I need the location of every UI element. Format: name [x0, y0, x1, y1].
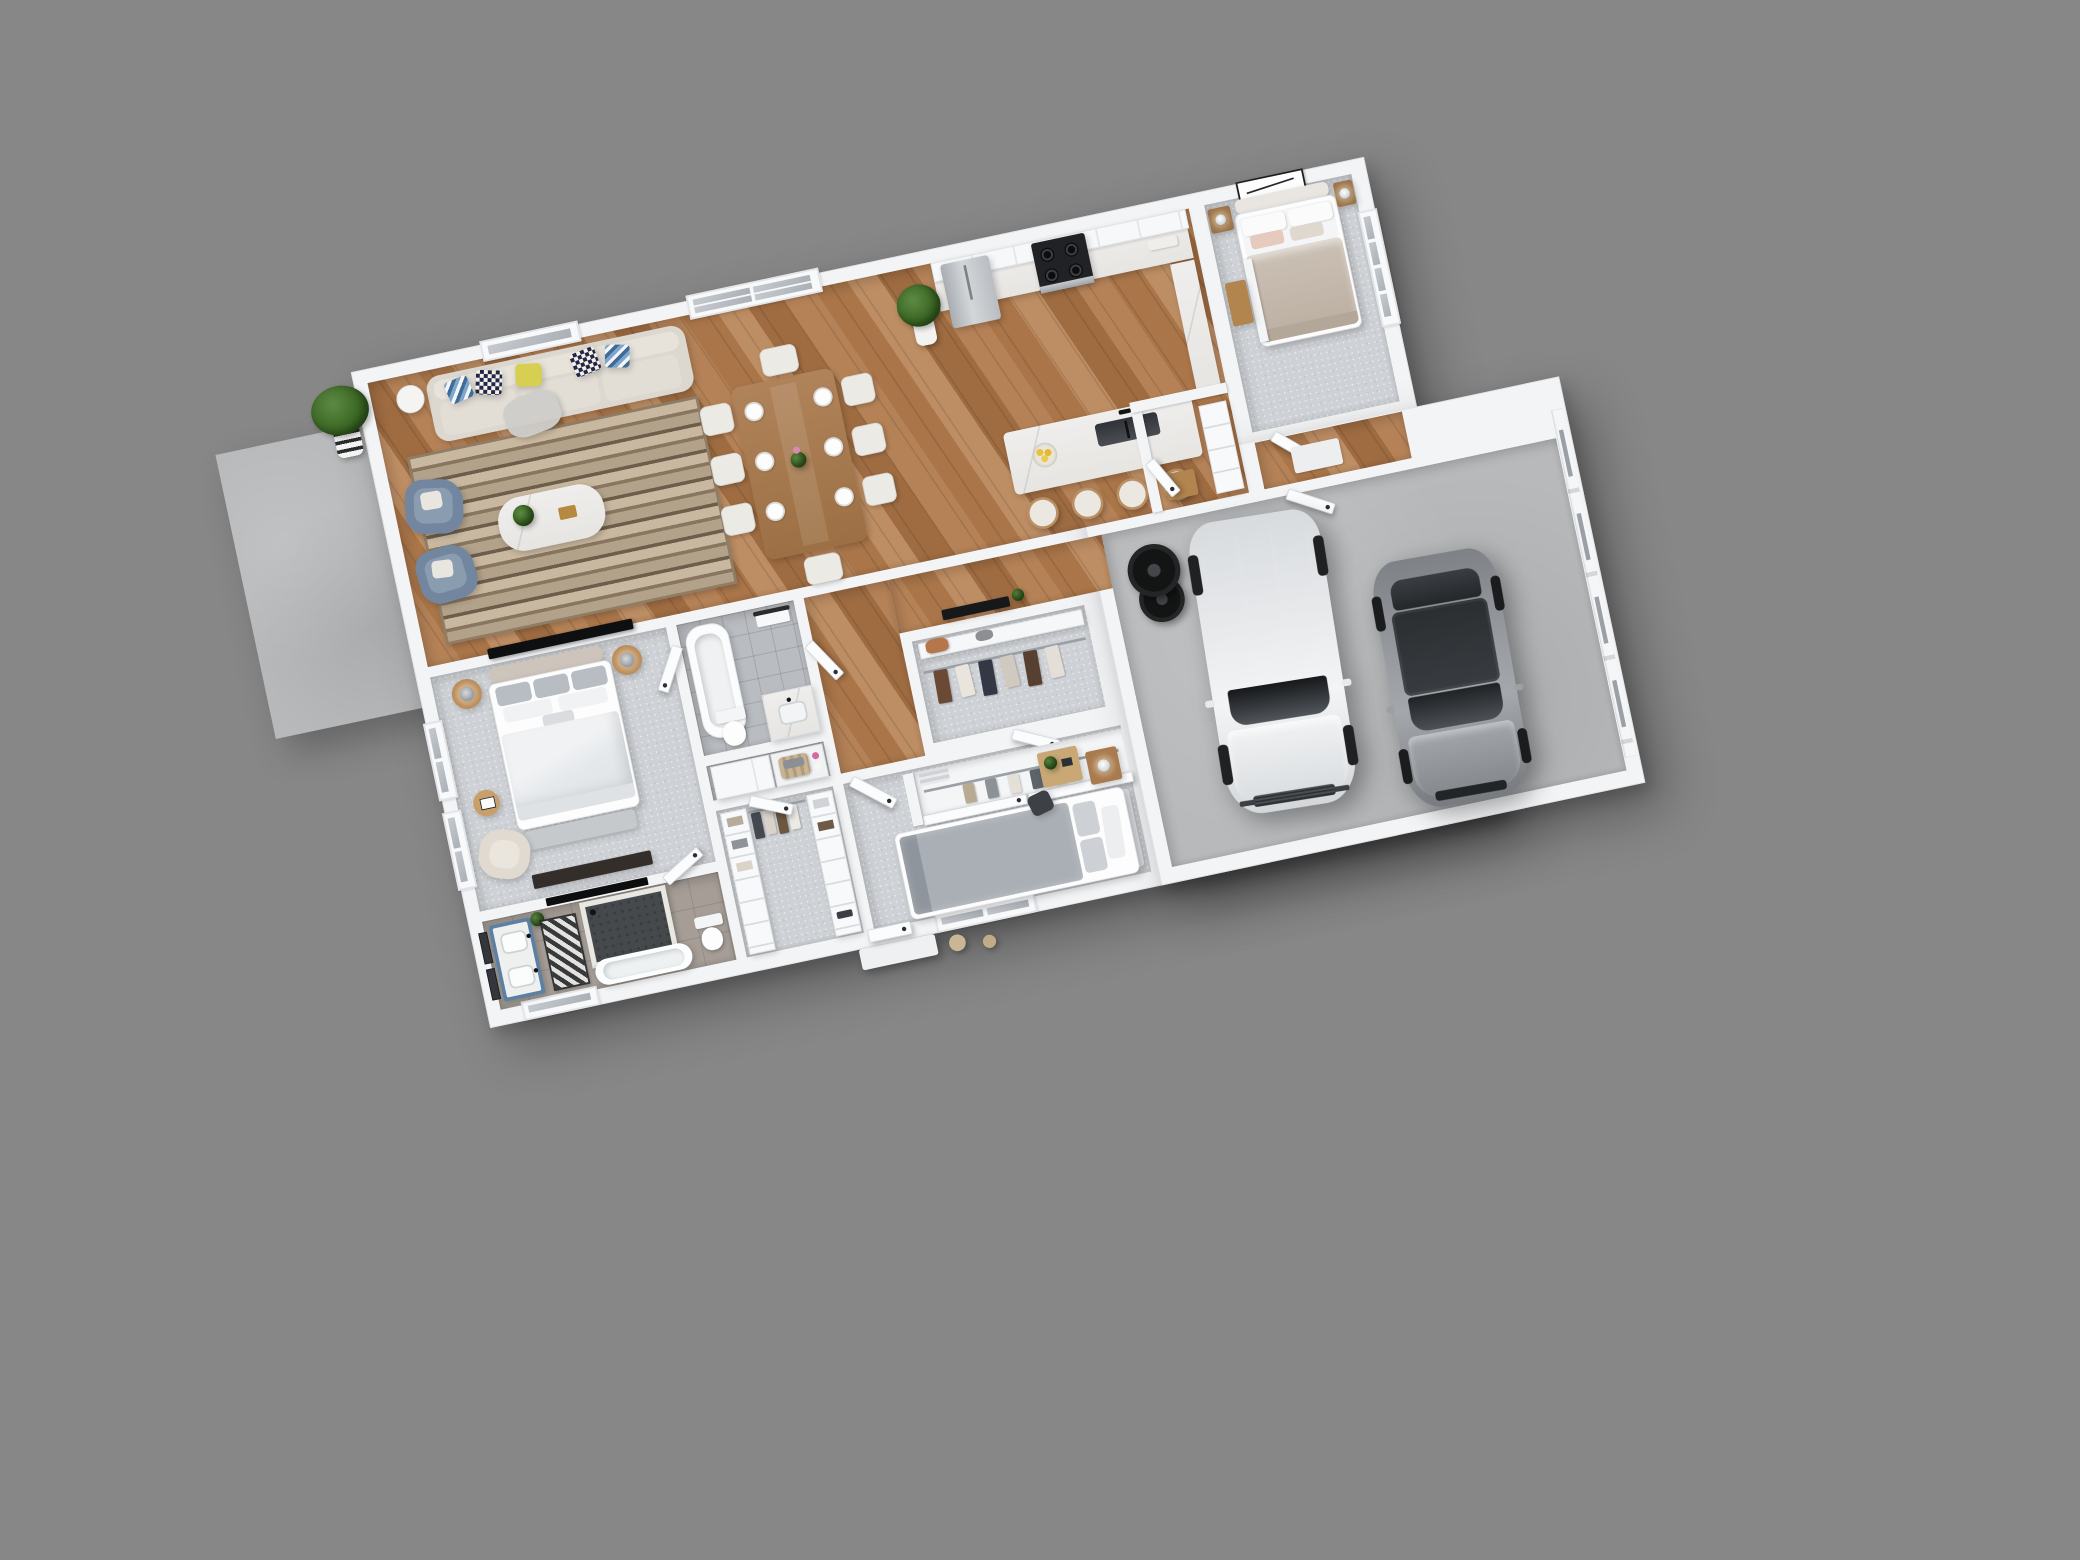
armchair-blue-1	[404, 478, 464, 535]
pillow-gray	[1079, 836, 1108, 873]
garden-pouf	[982, 934, 998, 950]
pillow-yellow	[515, 363, 542, 387]
bedroom3-nightstand	[1085, 746, 1123, 785]
decor-box	[558, 505, 578, 521]
floor-plan-scene	[203, 117, 1658, 1084]
sedan-roof-sunroof	[1391, 597, 1501, 697]
pillow-zigzag-right	[605, 345, 630, 368]
pillow-gray	[1072, 800, 1101, 837]
garden-pouf	[948, 933, 968, 953]
book	[479, 796, 496, 810]
towel-stack	[918, 768, 950, 786]
pillow-checker-left	[475, 370, 502, 396]
detergent-bottle-pink	[811, 752, 819, 760]
shoes	[836, 909, 853, 919]
detergent-bottle-white	[814, 762, 822, 770]
screenshot-root: { "scene": { "type": "3d-floor-plan-rend…	[0, 0, 2080, 1560]
island-sink	[1094, 412, 1161, 448]
nightstand	[1207, 205, 1235, 234]
shower-head	[589, 909, 596, 916]
canister-set	[1147, 235, 1178, 252]
island-faucet	[1118, 408, 1131, 415]
desk-item	[1061, 757, 1073, 767]
laundry-basket	[777, 752, 811, 780]
coffee-table-plant	[511, 503, 536, 528]
lemon-bowl	[1030, 440, 1059, 469]
